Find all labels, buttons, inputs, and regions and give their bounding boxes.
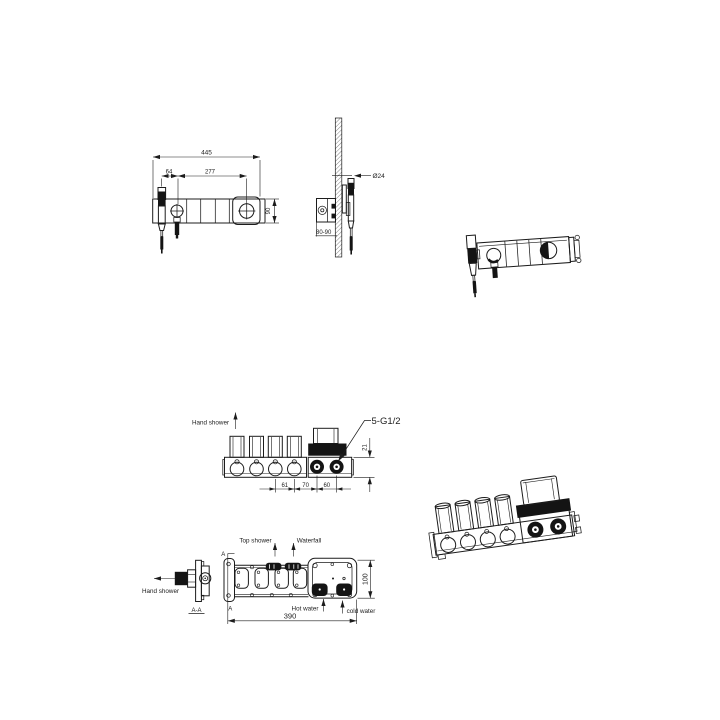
- dim-70: 70: [302, 483, 309, 489]
- dim-64: 64: [166, 170, 173, 176]
- dim-445: 445: [201, 150, 212, 157]
- dim-100: 100: [362, 573, 369, 585]
- section-hand-shower-label: Hand shower: [142, 588, 179, 595]
- dim-80-90: 80-90: [316, 230, 332, 236]
- dim-390: 390: [284, 611, 297, 620]
- connection-label: 5-G1/2: [372, 416, 401, 427]
- dim-60: 60: [323, 483, 330, 489]
- cold-water-label: cold water: [347, 608, 376, 615]
- dim-dia24: Ø24: [373, 173, 386, 180]
- section-marker-bottom: A: [228, 607, 232, 613]
- top-shower-label: Top shower: [239, 538, 271, 545]
- dim-277: 277: [205, 170, 216, 176]
- hand-shower-label: Hand shower: [192, 419, 229, 426]
- dim-90: 90: [266, 207, 272, 214]
- section-marker-top: A: [221, 552, 225, 558]
- dim-61: 61: [281, 483, 288, 489]
- section-title-text: A-A: [191, 608, 201, 614]
- waterfall-label: Waterfall: [297, 538, 322, 545]
- wall-section: [335, 118, 342, 257]
- technical-drawing: 445 64 277 90: [0, 0, 720, 720]
- dim-21: 21: [363, 444, 369, 451]
